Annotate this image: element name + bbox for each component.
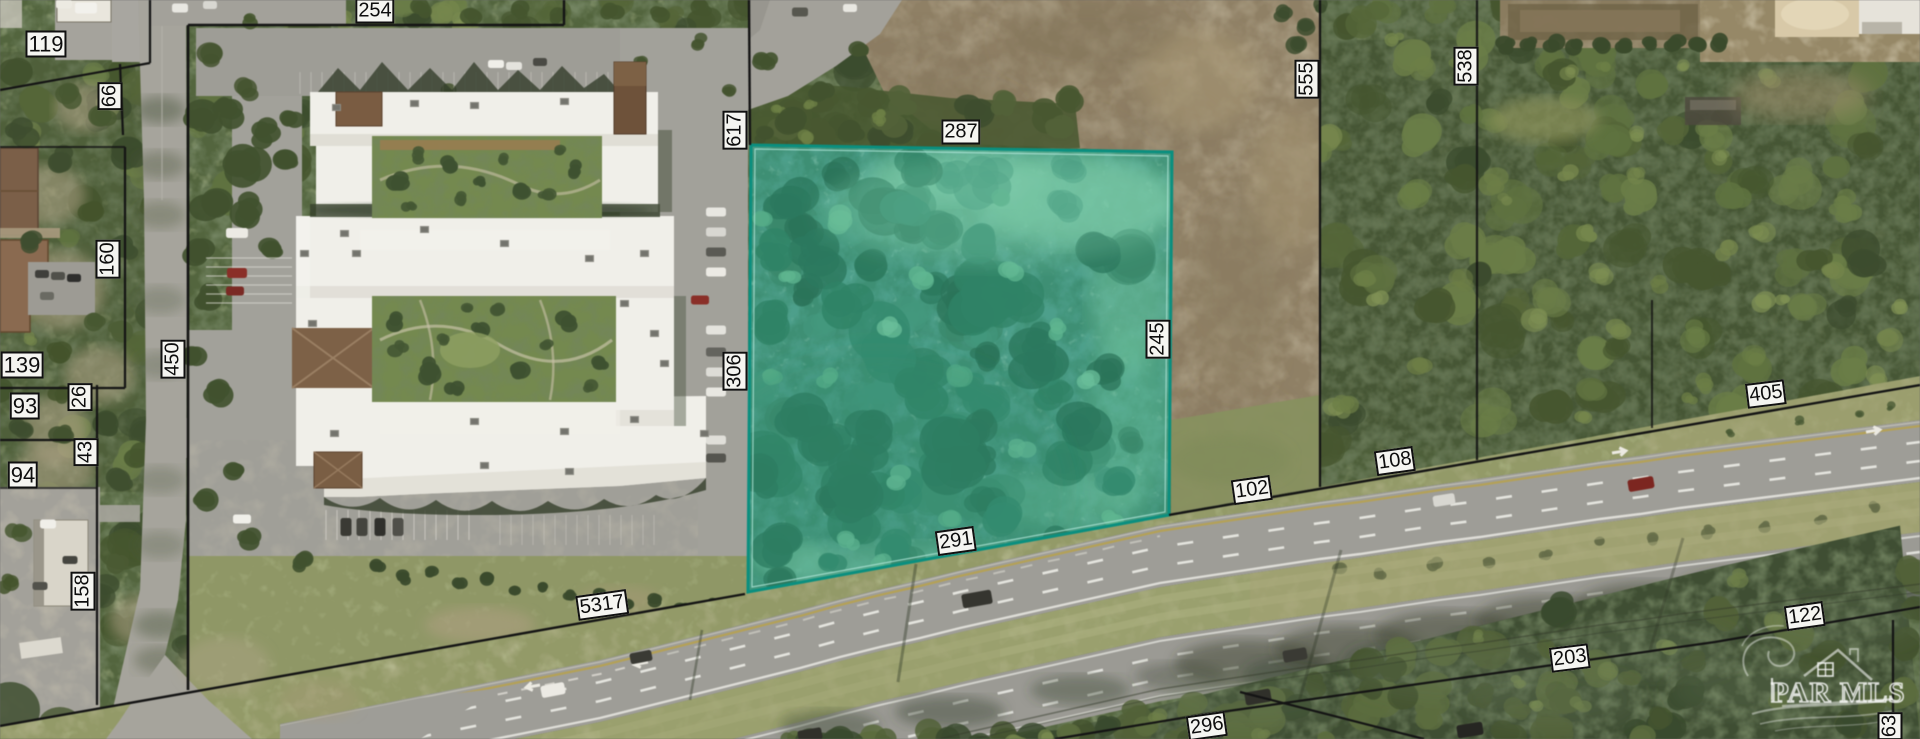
- svg-text:PAR MLS: PAR MLS: [1771, 677, 1906, 709]
